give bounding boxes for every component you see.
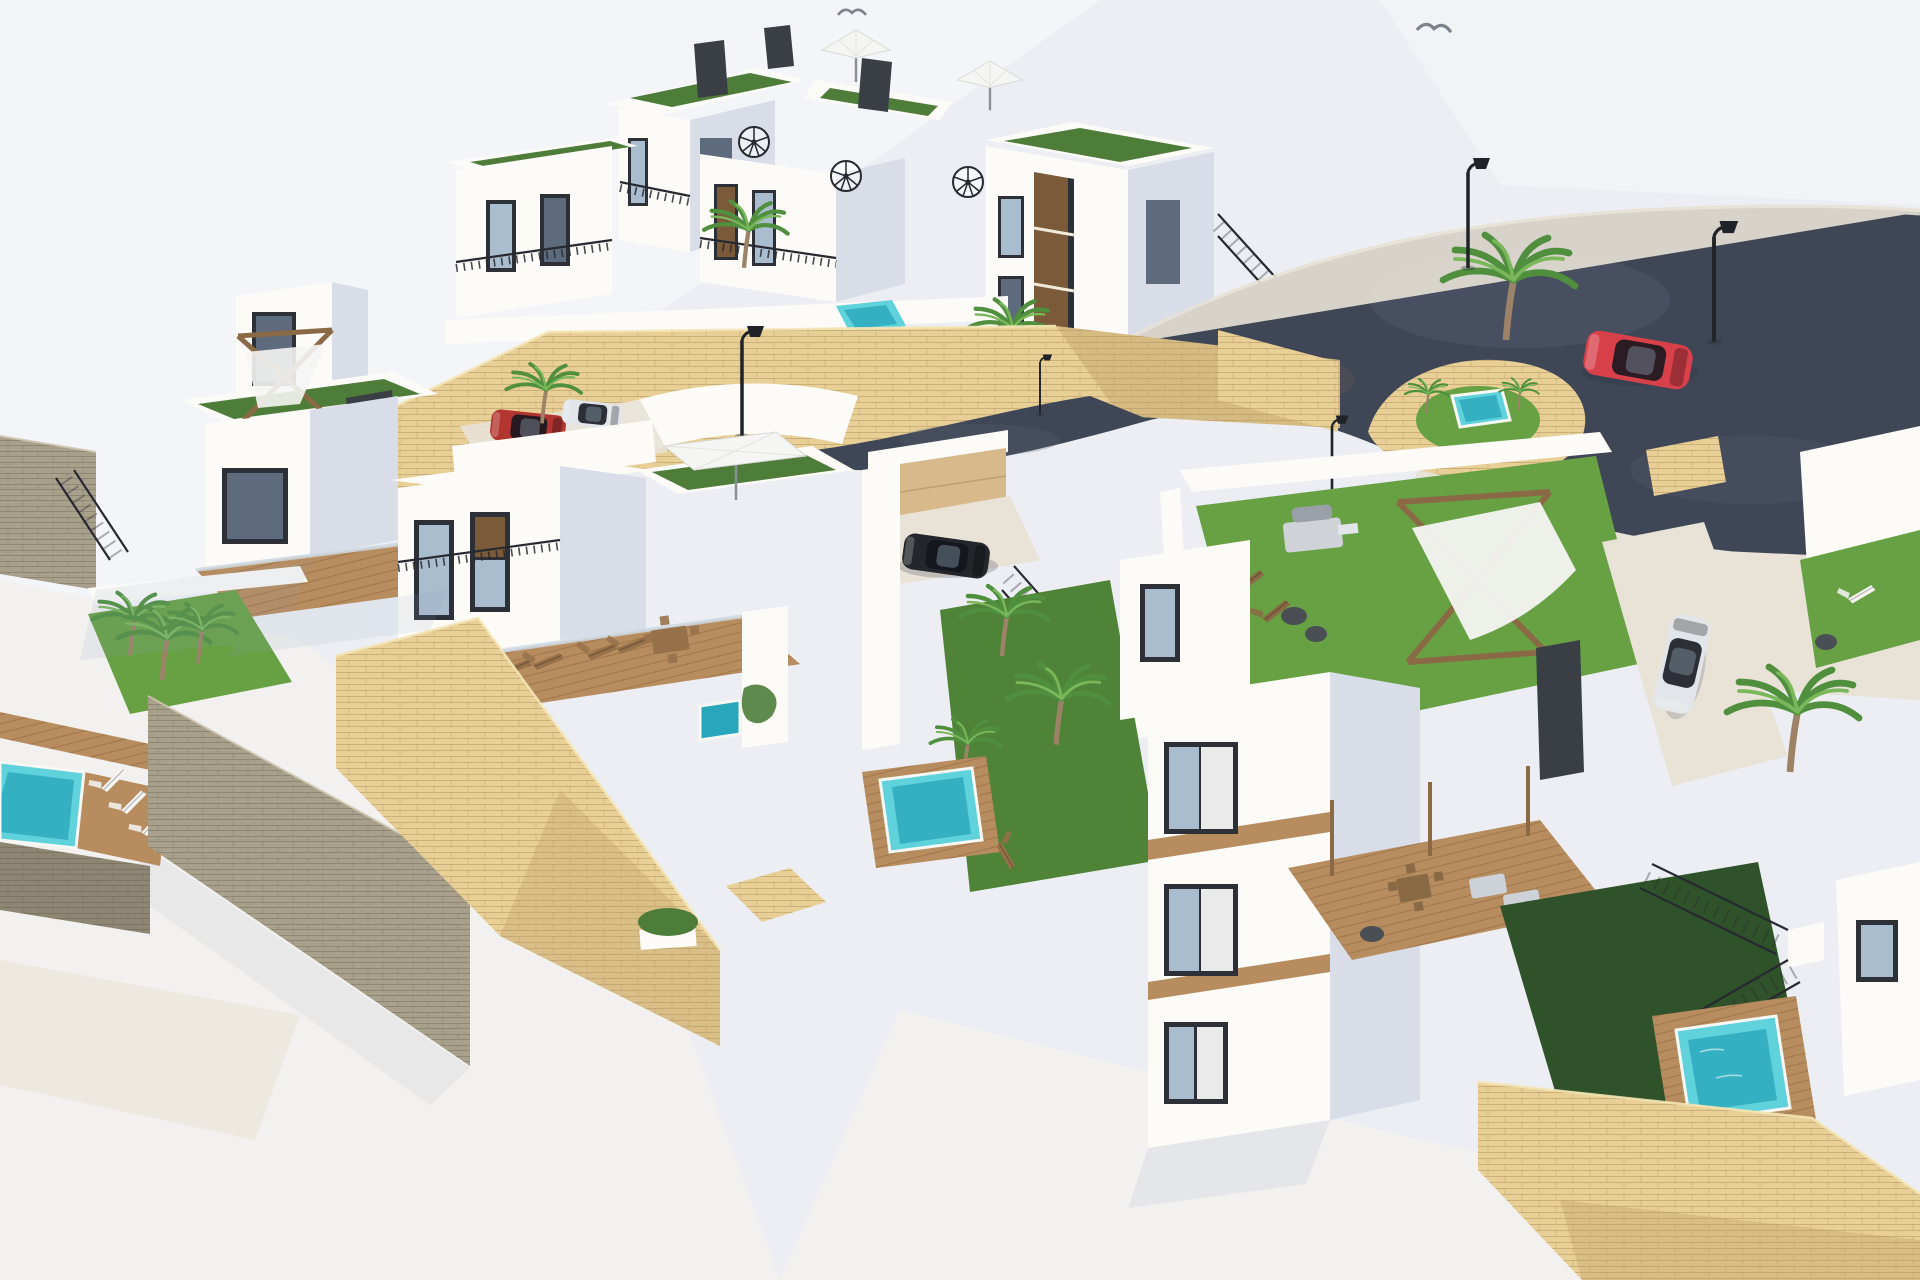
bean-bag [1281, 607, 1307, 625]
pool-deep [892, 777, 971, 844]
window-glass [475, 560, 505, 607]
window-glass [1001, 199, 1021, 255]
pool-deep [1688, 1029, 1777, 1111]
window-glass [1145, 589, 1175, 657]
bean-bag [1305, 626, 1327, 642]
chair [659, 615, 669, 625]
spiral-staircase [953, 167, 983, 197]
tall-white-wall [862, 464, 900, 750]
villa-side-face [332, 282, 368, 392]
outdoor-fireplace [1536, 640, 1584, 780]
chair [1387, 881, 1397, 891]
chair [667, 653, 677, 663]
villa-left-unit [446, 138, 638, 318]
villa-side-face [560, 466, 646, 640]
villa-mid [700, 154, 905, 302]
chair [1433, 871, 1443, 881]
pool-deep [0, 772, 74, 840]
sliding-door [1164, 742, 1238, 834]
window-dark [227, 473, 283, 539]
dining-table [651, 626, 690, 655]
spiral-staircase [739, 127, 769, 157]
party-wall [742, 606, 788, 748]
rooftop-stair-box [694, 40, 728, 98]
chair [643, 633, 653, 643]
planter-shrub [638, 908, 698, 936]
villa-front-face [456, 146, 612, 318]
bean-bag [1815, 634, 1837, 650]
architectural-render [0, 0, 1920, 1280]
rooftop-panel [764, 25, 794, 69]
bbq-side-shelf [1338, 523, 1359, 535]
sliding-door [1164, 884, 1238, 976]
window-frame-edge [1068, 178, 1074, 344]
chair [689, 625, 699, 635]
spiral-staircase [831, 161, 861, 191]
rooftop-panel [858, 58, 892, 112]
chair [1413, 901, 1423, 911]
bean-bag [1360, 926, 1384, 942]
garden-pool [862, 756, 1000, 868]
plunge-pool [1452, 390, 1510, 427]
infinity-pool [700, 700, 740, 740]
sliding-door [1164, 1022, 1228, 1104]
villa-side-face [310, 396, 398, 556]
stair-landing [1788, 922, 1824, 968]
render-stage [0, 0, 1920, 1280]
gray-wall-texture [0, 436, 96, 590]
window-dark [1146, 200, 1180, 284]
chair [1405, 863, 1415, 873]
window-glass [1861, 925, 1893, 977]
